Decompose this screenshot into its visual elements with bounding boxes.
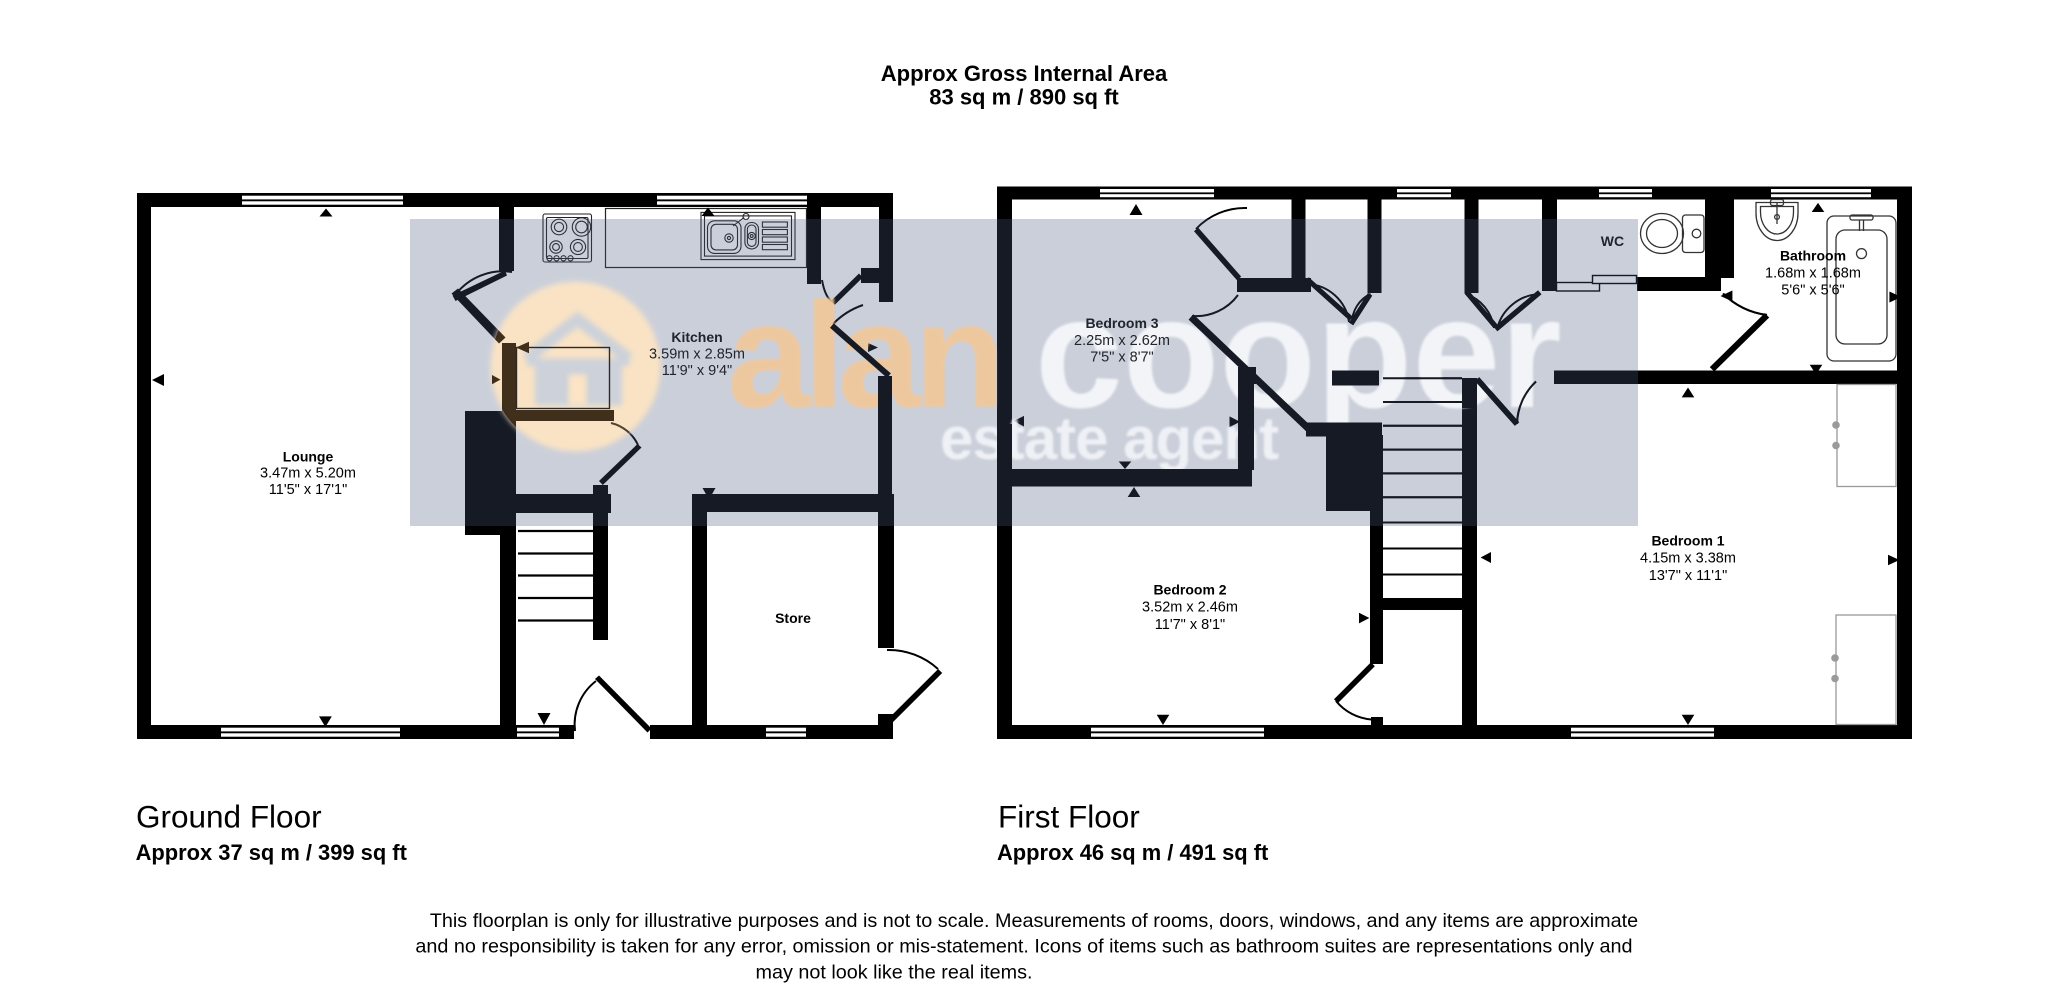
- svg-text:First Floor: First Floor: [998, 798, 1140, 834]
- svg-text:Approx 46 sq m / 491 sq ft: Approx 46 sq m / 491 sq ft: [997, 840, 1269, 865]
- svg-text:1.68m x 1.68m: 1.68m x 1.68m: [1765, 266, 1861, 282]
- svg-text:may not look like the real ite: may not look like the real items.: [755, 961, 1032, 983]
- svg-text:Bedroom 2: Bedroom 2: [1153, 581, 1226, 597]
- svg-text:Approx 37 sq m / 399 sq ft: Approx 37 sq m / 399 sq ft: [136, 840, 408, 865]
- svg-text:2.25m x 2.62m: 2.25m x 2.62m: [1074, 333, 1170, 349]
- svg-text:13'7" x 11'1": 13'7" x 11'1": [1649, 568, 1727, 584]
- svg-text:11'9" x 9'4": 11'9" x 9'4": [662, 363, 732, 379]
- svg-text:83 sq m / 890 sq ft: 83 sq m / 890 sq ft: [929, 85, 1119, 110]
- svg-text:WC: WC: [1601, 233, 1624, 249]
- svg-text:Ground Floor: Ground Floor: [136, 798, 322, 834]
- svg-text:Lounge: Lounge: [283, 448, 334, 464]
- svg-text:Store: Store: [775, 610, 811, 626]
- svg-text:estate agent: estate agent: [940, 405, 1279, 472]
- svg-text:7'5" x 8'7": 7'5" x 8'7": [1090, 350, 1153, 366]
- svg-text:This floorplan is only for ill: This floorplan is only for illustrative …: [430, 910, 1638, 932]
- svg-text:3.47m x 5.20m: 3.47m x 5.20m: [260, 466, 356, 482]
- svg-text:3.52m x 2.46m: 3.52m x 2.46m: [1142, 600, 1238, 616]
- svg-text:4.15m x 3.38m: 4.15m x 3.38m: [1640, 551, 1736, 567]
- svg-text:and no responsibility is taken: and no responsibility is taken for any e…: [415, 936, 1632, 958]
- svg-text:Approx Gross Internal Area: Approx Gross Internal Area: [881, 61, 1168, 86]
- svg-text:3.59m x 2.85m: 3.59m x 2.85m: [649, 347, 745, 363]
- svg-text:11'5" x 17'1": 11'5" x 17'1": [269, 482, 347, 498]
- svg-text:5'6" x 5'6": 5'6" x 5'6": [1781, 282, 1844, 298]
- svg-text:11'7" x 8'1": 11'7" x 8'1": [1155, 617, 1225, 633]
- svg-text:Kitchen: Kitchen: [671, 329, 722, 345]
- svg-text:Bathroom: Bathroom: [1780, 248, 1846, 264]
- svg-text:Bedroom 3: Bedroom 3: [1085, 315, 1158, 331]
- svg-text:Bedroom 1: Bedroom 1: [1651, 532, 1724, 548]
